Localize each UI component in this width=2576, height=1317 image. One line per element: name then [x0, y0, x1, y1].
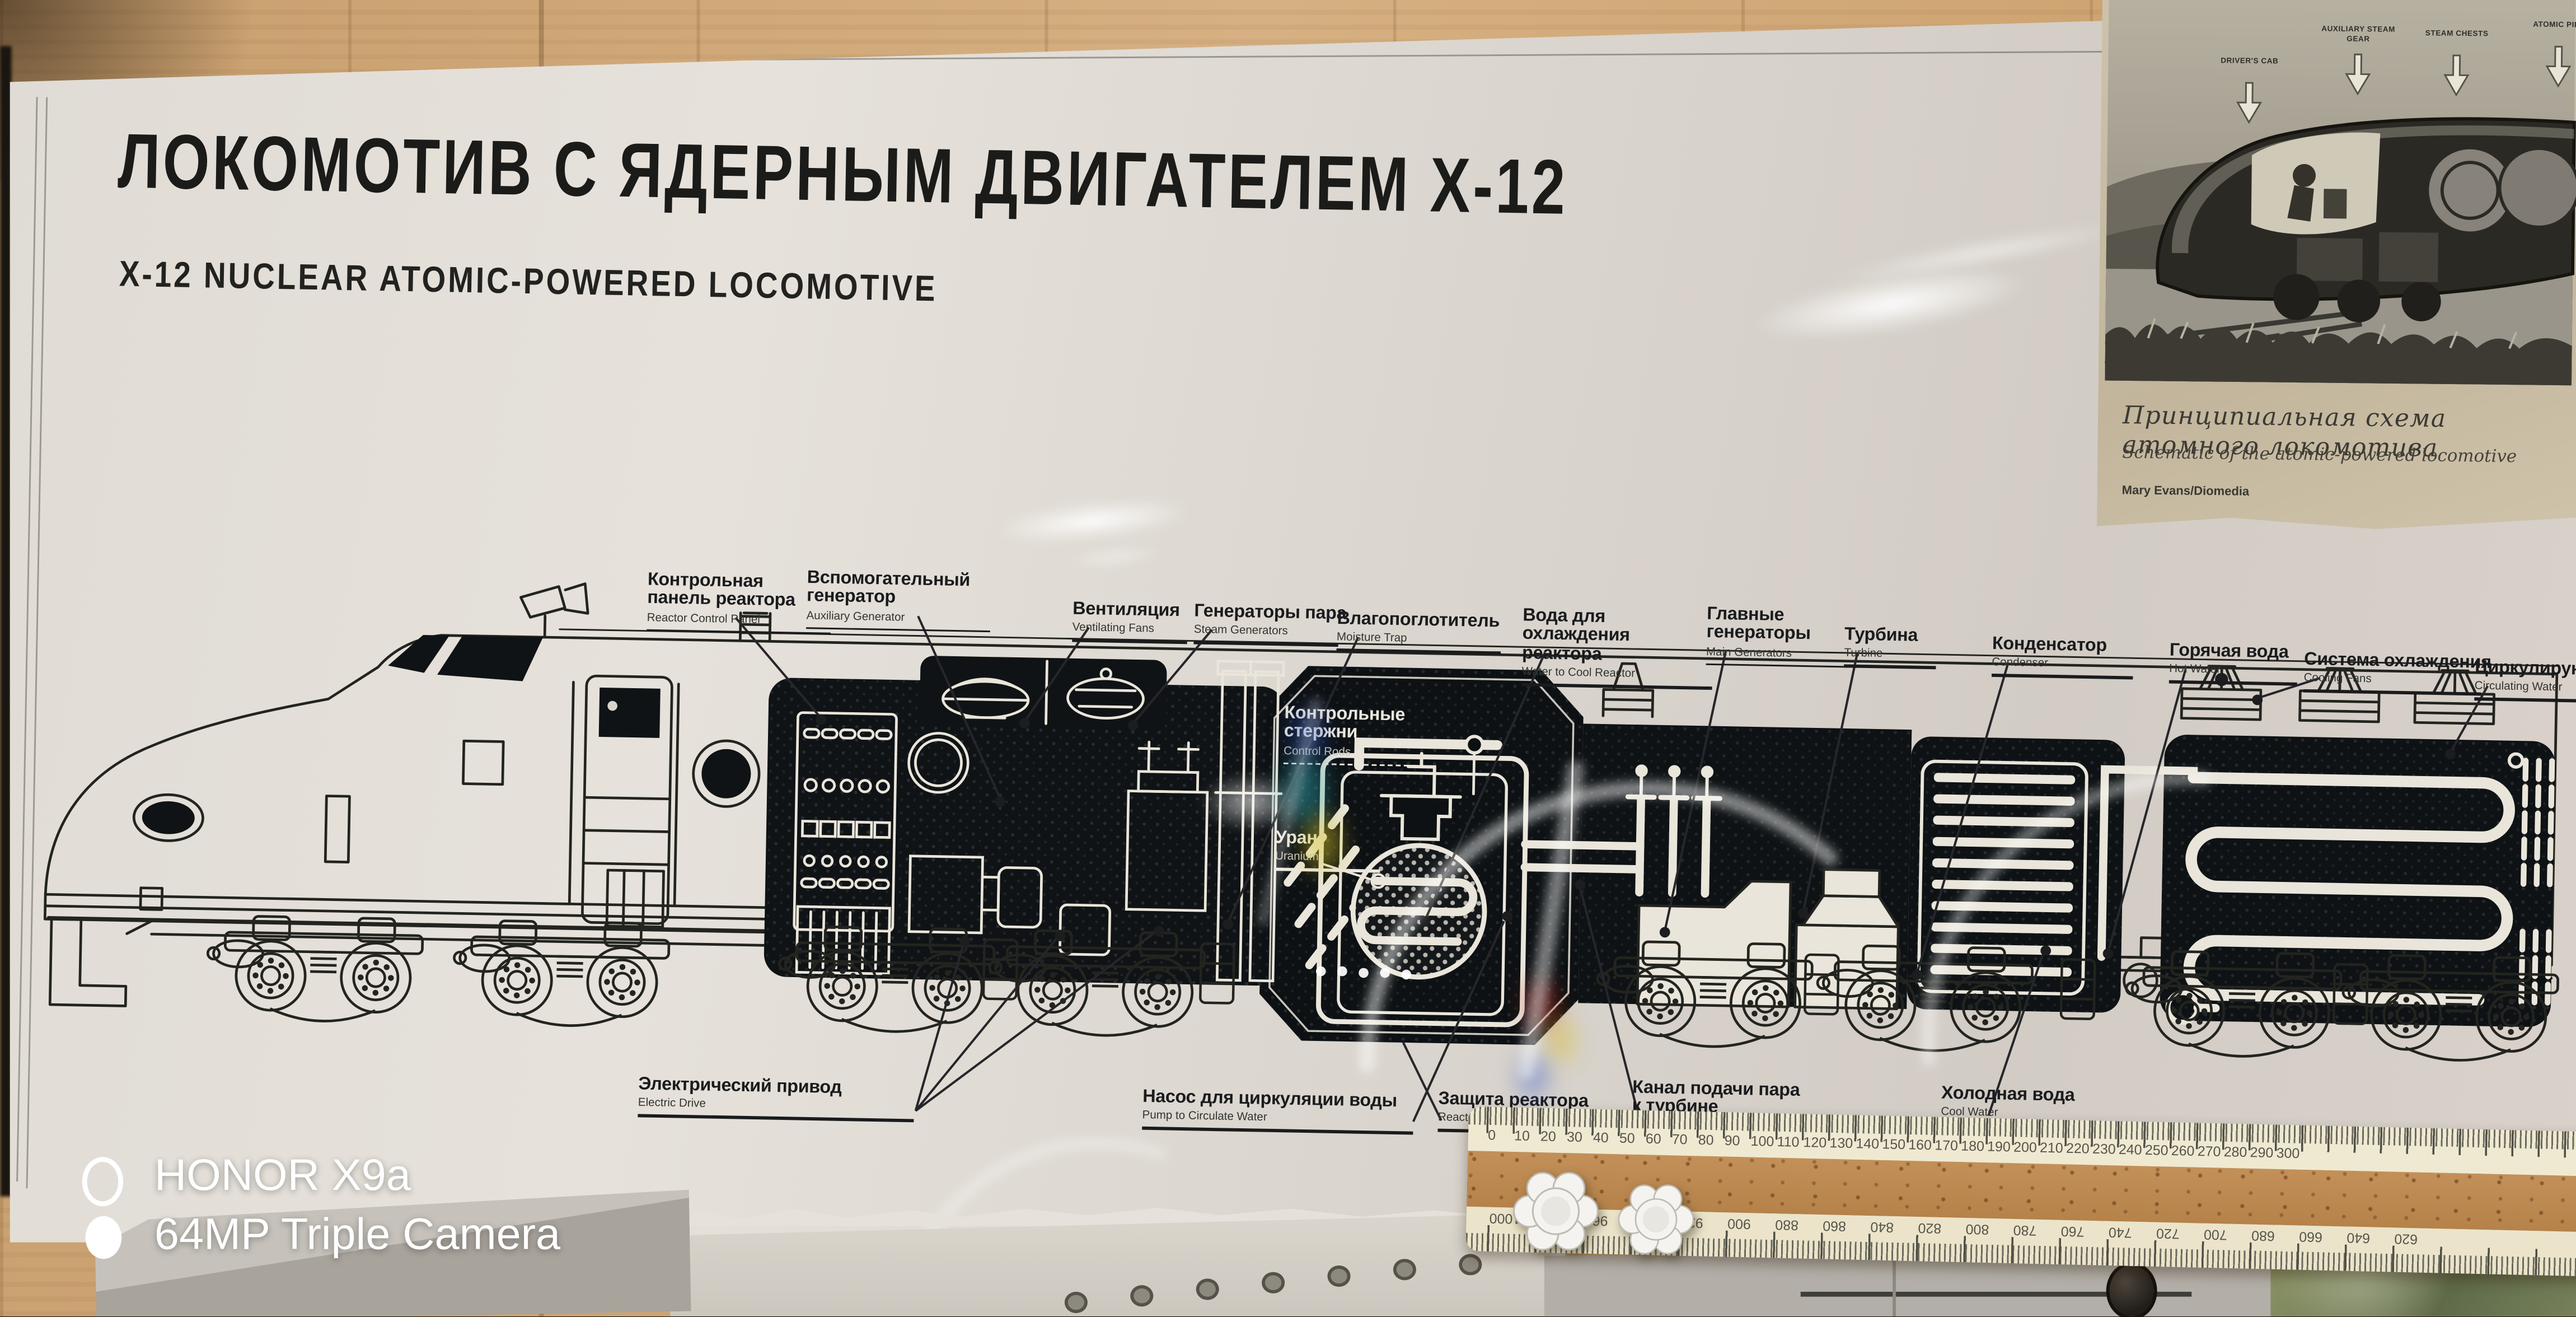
- dot-icon: [86, 1216, 122, 1259]
- part-label-steam-chests: STEAM CHESTS: [2409, 29, 2504, 39]
- label-condenser: КонденсаторCondenser: [1992, 636, 2134, 679]
- label-moisture-trap: ВлагопоглотительMoisture Trap: [1337, 611, 1502, 655]
- dark-knob: [2106, 1262, 2157, 1316]
- white-star-knob: [1617, 1180, 1696, 1259]
- windshield-pane: [388, 634, 449, 673]
- photo-scene: ЛОКОМОТИВ С ЯДЕРНЫМ ДВИГАТЕЛЕМ Х-12 X-12…: [0, 0, 2576, 1316]
- label-pump-to-circulate-water: Насос для циркуляции водыPump to Circula…: [1142, 1089, 1414, 1134]
- side-poster-credit: Mary Evans/Diomedia: [2122, 483, 2250, 499]
- board-hole: [1065, 1292, 1088, 1313]
- label-control-rods: Контрольные стержниControl Rods: [1284, 705, 1426, 767]
- label-ventilating-fans: ВентиляцияVentilating Fans: [1072, 601, 1188, 644]
- label-turbine: ТурбинаTurbine: [1844, 627, 1937, 669]
- label-main-generators: Главные генераторыMain Generators: [1706, 606, 1858, 669]
- part-label-drivers-cab: DRIVER'S CAB: [2202, 56, 2297, 67]
- board-hole: [1393, 1259, 1416, 1280]
- board-hole: [1459, 1254, 1482, 1275]
- board-hole: [1130, 1285, 1153, 1306]
- side-poster-caption-en: Schematic of the atomic-powered locomoti…: [2122, 443, 2566, 468]
- watermark-camera: 64MP Triple Camera: [154, 1209, 560, 1260]
- label-reactor-control-panel: Контрольная панель реактораReactor Contr…: [647, 572, 832, 635]
- board-hole: [1327, 1265, 1350, 1287]
- side-poster-illustration: [2099, 0, 2576, 389]
- label-uranium: УранUranium: [1275, 830, 1381, 873]
- label-cooling-fans: Система охлажденияCooling Fans: [2303, 651, 2481, 695]
- white-star-knob: [1511, 1167, 1600, 1255]
- label-circulating-water: Циркулирующая водаCirculating Water: [2474, 660, 2576, 703]
- part-label-auxiliary-steam-gear: AUXILIARY STEAM GEAR: [2311, 24, 2406, 44]
- board-hole: [1262, 1272, 1285, 1293]
- label-auxiliary-generator: Вспомогательный генераторAuxiliary Gener…: [806, 569, 991, 633]
- label-electric-drive: Электрический приводElectric Drive: [638, 1076, 914, 1122]
- label-water-to-cool-reactor: Вода для охлаждения реактораWater to Coo…: [1521, 608, 1713, 690]
- board-hole: [1196, 1278, 1219, 1300]
- watermark-device: HONOR X9a: [154, 1151, 411, 1202]
- poster-edge-shadow: [0, 46, 12, 1197]
- part-label-atomic-pile: ATOMIC PILE: [2511, 20, 2576, 30]
- windshield-pane: [437, 636, 543, 682]
- side-poster: DRIVER'S CAB AUXILIARY STEAM GEAR STEAM …: [2097, 0, 2576, 536]
- front-steps: [50, 919, 152, 1006]
- label-hot-water: Горячая водаHot Water: [2169, 642, 2298, 686]
- label-steam-generators: Генераторы параSteam Generators: [1193, 603, 1339, 647]
- ring-icon: [82, 1157, 123, 1206]
- cabinet-seam: [1893, 1255, 1896, 1316]
